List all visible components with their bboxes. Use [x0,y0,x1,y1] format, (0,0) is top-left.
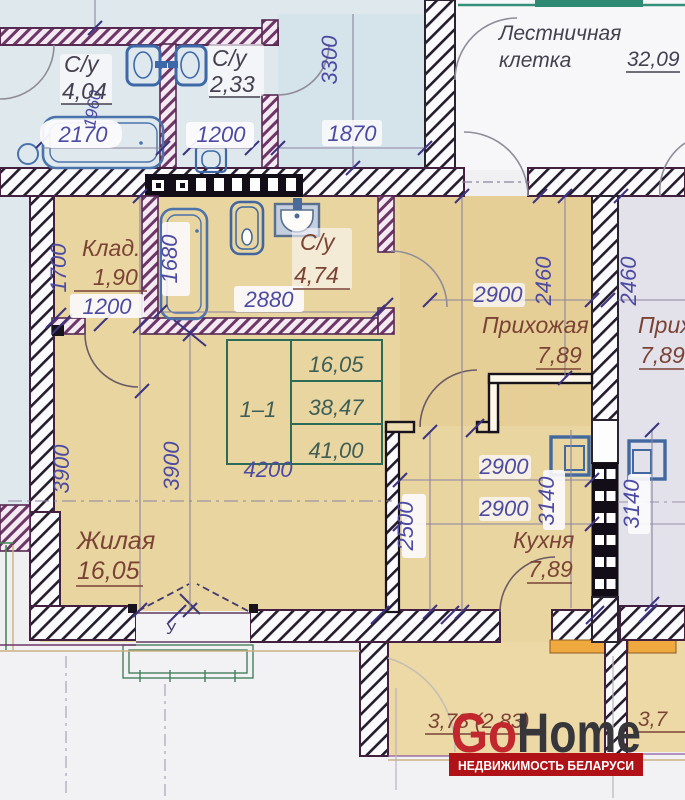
svg-text:1200: 1200 [83,294,133,319]
svg-text:2,33: 2,33 [209,71,255,97]
svg-text:НЕДВИЖИМОСТЬ БЕЛАРУСИ: НЕДВИЖИМОСТЬ БЕЛАРУСИ [458,758,634,773]
svg-text:3140: 3140 [534,476,559,526]
svg-text:2460: 2460 [531,256,556,307]
svg-text:С/у: С/у [212,45,248,71]
svg-text:1700: 1700 [46,243,71,293]
svg-text:клетка: клетка [499,49,571,72]
svg-text:1,90: 1,90 [93,264,138,290]
svg-text:Лестничная: Лестничная [497,22,621,45]
svg-text:2900: 2900 [479,454,530,479]
svg-text:1680: 1680 [157,234,182,284]
svg-text:1870: 1870 [328,121,378,146]
svg-text:16,05: 16,05 [308,352,364,377]
svg-text:Прих: Прих [638,312,685,338]
svg-text:3900: 3900 [49,444,74,494]
svg-text:7,89: 7,89 [640,342,685,368]
svg-text:2460: 2460 [616,256,641,307]
svg-text:38,47: 38,47 [308,395,364,420]
svg-text:2880: 2880 [244,287,295,312]
svg-text:У: У [166,621,177,638]
svg-text:3140: 3140 [619,479,644,529]
svg-text:1–1: 1–1 [240,397,277,422]
svg-text:Жилая: Жилая [75,527,155,555]
svg-text:4200: 4200 [244,457,294,482]
svg-text:4,74: 4,74 [294,262,339,288]
svg-text:С/у: С/у [64,51,100,77]
svg-text:Прихожая: Прихожая [482,312,589,338]
svg-text:7,89: 7,89 [528,556,573,582]
svg-text:Клад.: Клад. [82,235,140,261]
svg-text:3,7: 3,7 [638,708,669,731]
svg-text:3300: 3300 [317,35,342,85]
svg-text:2900: 2900 [479,496,530,521]
svg-text:2900: 2900 [473,282,524,307]
svg-text:С/у: С/у [300,229,336,255]
svg-text:7,89: 7,89 [537,342,582,368]
svg-text:41,00: 41,00 [308,438,364,463]
svg-text:2500: 2500 [393,501,418,552]
svg-text:16,05: 16,05 [77,557,140,585]
svg-text:4,04: 4,04 [62,78,107,104]
svg-text:32,09: 32,09 [627,48,680,71]
svg-text:Кухня: Кухня [513,527,574,553]
svg-text:1200: 1200 [197,122,247,147]
svg-text:3900: 3900 [159,441,184,491]
